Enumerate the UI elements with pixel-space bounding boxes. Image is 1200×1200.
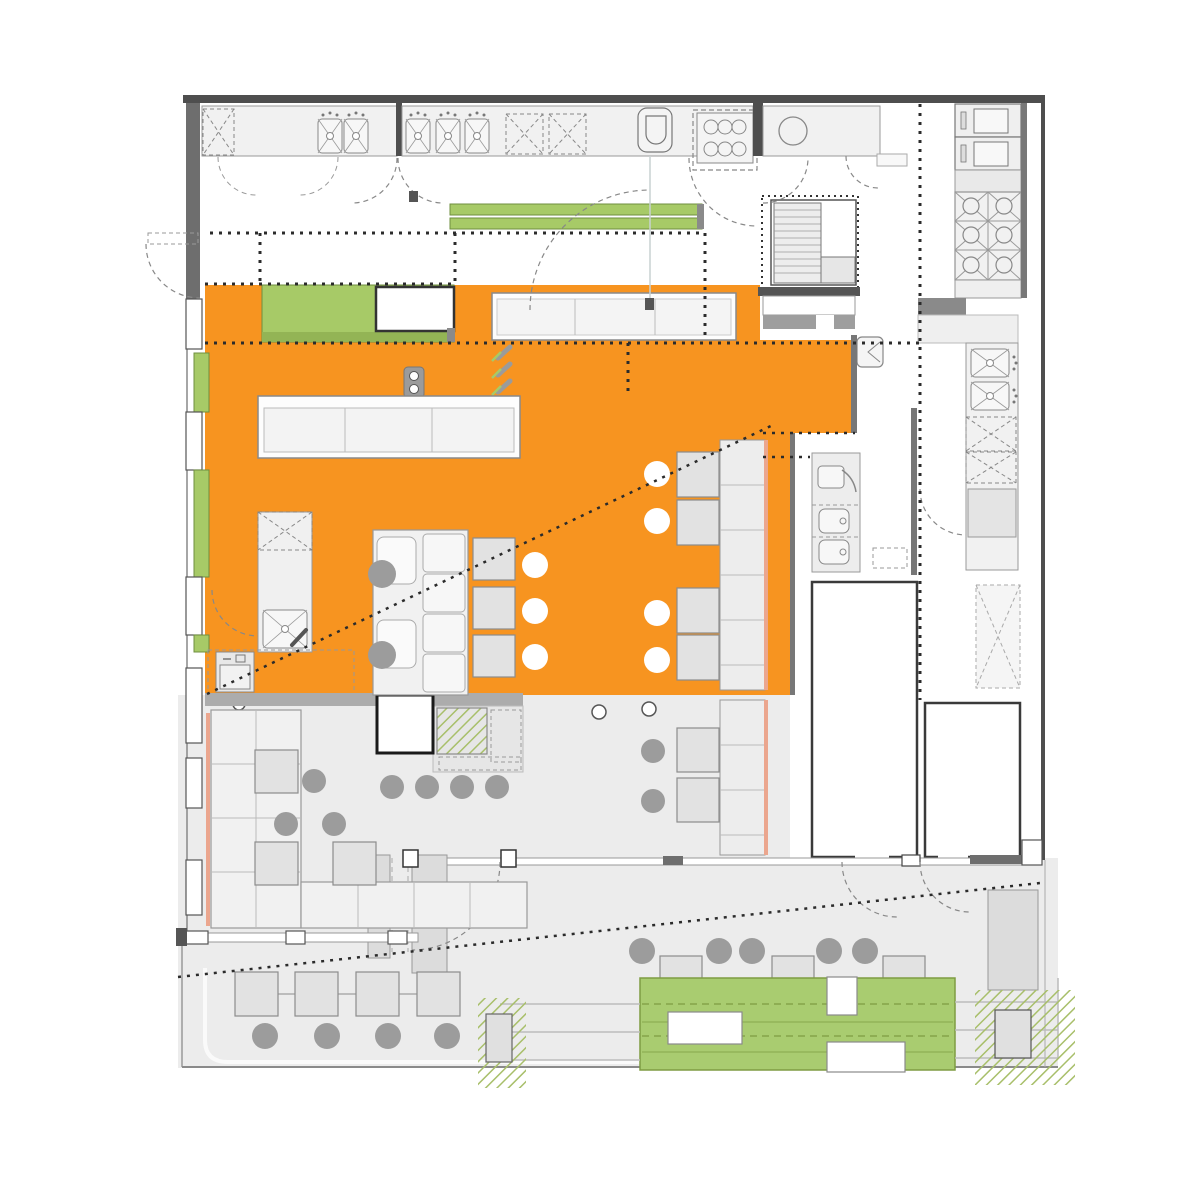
equipment-unit <box>968 489 1016 537</box>
floor-plan-page <box>0 0 1200 1200</box>
round-chair <box>375 1023 401 1049</box>
terrace-table <box>295 972 338 1016</box>
wc-basin <box>818 466 844 488</box>
wall-left-upper <box>186 103 200 299</box>
faucet-dot <box>329 112 332 115</box>
sink-drain <box>445 133 452 140</box>
door-hinge <box>645 298 654 310</box>
faucet-dot <box>1013 356 1016 359</box>
faucet-dot <box>1015 395 1018 398</box>
floor-plan-canvas <box>0 0 1200 1200</box>
wall-right <box>1041 95 1045 860</box>
round-chair <box>322 812 346 836</box>
wall-wc-left <box>790 433 795 695</box>
round-chair <box>641 739 665 763</box>
door-sill <box>663 856 683 865</box>
green-hatch-rug <box>437 708 487 754</box>
round-chair <box>485 775 509 799</box>
wall-kitchen-right <box>1021 103 1027 298</box>
wall-bench-green <box>194 353 209 412</box>
wall-block <box>918 298 966 315</box>
round-chair <box>739 938 765 964</box>
column <box>902 855 920 866</box>
round-chair <box>252 1023 278 1049</box>
floor-marker <box>642 702 656 716</box>
round-chair <box>629 938 655 964</box>
square-table <box>473 635 515 677</box>
burner <box>963 198 979 214</box>
sofa-seat <box>423 654 465 692</box>
sofa-seat <box>423 574 465 612</box>
round-chair <box>852 938 878 964</box>
square-table <box>333 842 376 885</box>
window <box>186 668 202 743</box>
burner <box>996 198 1012 214</box>
window <box>186 758 202 808</box>
round-table <box>368 641 396 669</box>
column <box>403 850 418 867</box>
burner <box>963 227 979 243</box>
square-table <box>677 500 719 545</box>
faucet-dot <box>454 114 457 117</box>
deck-table <box>827 1042 905 1072</box>
round-chair <box>302 769 326 793</box>
planter-wall <box>988 890 1038 990</box>
wall-band <box>763 315 855 329</box>
white-table-box <box>376 287 454 331</box>
square-table <box>677 728 719 772</box>
wall-top <box>183 95 1045 103</box>
burner <box>996 257 1012 273</box>
pot-sink <box>638 108 672 152</box>
tall-cabinet-x <box>976 585 1020 688</box>
round-chair <box>706 938 732 964</box>
sink-drain <box>282 626 289 633</box>
oven-handle <box>961 145 966 162</box>
bench-cap <box>697 204 704 229</box>
faucet-dot <box>348 114 351 117</box>
mullion <box>388 931 407 944</box>
faucet-dot <box>362 114 365 117</box>
square-table <box>677 635 719 680</box>
service-counter-inner <box>497 299 731 335</box>
planter-box <box>486 1014 512 1062</box>
sink-drain <box>327 133 334 140</box>
square-table <box>473 587 515 629</box>
banquette <box>720 440 765 690</box>
wall-bench-green <box>194 635 209 652</box>
mullion <box>286 931 305 944</box>
terrace-table <box>417 972 460 1016</box>
toilet <box>819 509 849 533</box>
square-table <box>677 452 719 497</box>
black-frame-table <box>377 695 433 753</box>
square-table <box>473 538 515 580</box>
oven-handle <box>961 112 966 129</box>
sink-drain <box>474 133 481 140</box>
faucet-dot <box>483 114 486 117</box>
wall-nub <box>176 928 187 946</box>
sink-drain <box>415 133 422 140</box>
round-chair <box>380 775 404 799</box>
wall-band <box>758 287 860 296</box>
square-table <box>255 750 298 793</box>
white-stool <box>644 600 670 626</box>
faucet-dot <box>355 112 358 115</box>
column <box>1022 840 1042 865</box>
faucet-dot <box>336 114 339 117</box>
faucet-dot <box>1015 362 1018 365</box>
white-stool <box>522 598 548 624</box>
square-table <box>677 778 719 822</box>
faucet-dot <box>1013 389 1016 392</box>
kitchen-counter <box>763 106 880 156</box>
terrace-table <box>235 972 278 1016</box>
faucet-dot <box>476 112 479 115</box>
wall-bench-green <box>194 470 209 577</box>
shelf <box>877 154 907 166</box>
round-chair <box>450 775 474 799</box>
wall-wc-right <box>911 408 917 575</box>
hand-basin <box>857 337 883 367</box>
floor-marker <box>592 705 606 719</box>
round-chair <box>415 775 439 799</box>
faucet-dot <box>447 112 450 115</box>
banquette <box>720 700 765 855</box>
sofa-seat <box>423 614 465 652</box>
window <box>186 299 202 349</box>
round-chair <box>434 1023 460 1049</box>
round-table <box>368 560 396 588</box>
planter-box <box>995 1010 1031 1058</box>
counter-band <box>955 280 1021 298</box>
sink-drain <box>987 393 994 400</box>
column <box>501 850 516 867</box>
faucet-dot <box>424 114 427 117</box>
terrace-table <box>356 972 399 1016</box>
white-stool <box>522 644 548 670</box>
faucet-dot <box>469 114 472 117</box>
burner <box>963 257 979 273</box>
white-stool <box>644 508 670 534</box>
window <box>186 860 202 915</box>
burner <box>996 227 1012 243</box>
faucet-dot <box>322 114 325 117</box>
deck-table <box>668 1012 742 1044</box>
green-bench-top <box>450 218 702 229</box>
round-chair <box>816 938 842 964</box>
faucet-dot <box>417 112 420 115</box>
sink <box>263 610 307 648</box>
square-table <box>255 842 298 885</box>
faucet-dot <box>1013 401 1016 404</box>
banquette-back <box>764 700 768 855</box>
toilet <box>819 540 849 564</box>
tap-knob <box>410 385 419 394</box>
green-bench-top <box>450 204 702 215</box>
banquette-back <box>764 440 768 690</box>
white-stool <box>644 647 670 673</box>
wall-notch <box>816 315 834 329</box>
bench-cap <box>447 328 455 342</box>
low-wall-band <box>205 693 523 706</box>
door-sill <box>970 855 1022 864</box>
oven-door <box>974 109 1008 133</box>
wall-segment <box>851 335 857 433</box>
wall-pier <box>396 103 402 156</box>
sink-drain <box>987 360 994 367</box>
niche <box>763 296 855 315</box>
door-hinge <box>409 191 418 202</box>
room-a <box>812 582 917 857</box>
counter-band <box>955 170 1021 192</box>
window <box>186 412 202 470</box>
wall-pier <box>753 103 763 156</box>
window <box>186 577 202 635</box>
room-b <box>925 703 1020 857</box>
stair-landing <box>821 257 855 283</box>
round-chair <box>274 812 298 836</box>
faucet-dot <box>410 114 413 117</box>
counter-step <box>918 315 1018 343</box>
sofa-back <box>206 713 210 926</box>
faucet-dot <box>440 114 443 117</box>
sofa-seat <box>423 534 465 572</box>
square-table <box>677 588 719 633</box>
faucet-dot <box>1013 368 1016 371</box>
sink-drain <box>353 133 360 140</box>
round-chair <box>641 789 665 813</box>
tap-knob <box>410 372 419 381</box>
deck-table <box>827 977 857 1015</box>
oven-door <box>974 142 1008 166</box>
stair-flight <box>774 203 821 283</box>
green-bench-strip <box>262 332 454 342</box>
white-stool <box>522 552 548 578</box>
door-leaf <box>186 931 208 944</box>
bar-counter-inner <box>264 408 514 452</box>
round-chair <box>314 1023 340 1049</box>
